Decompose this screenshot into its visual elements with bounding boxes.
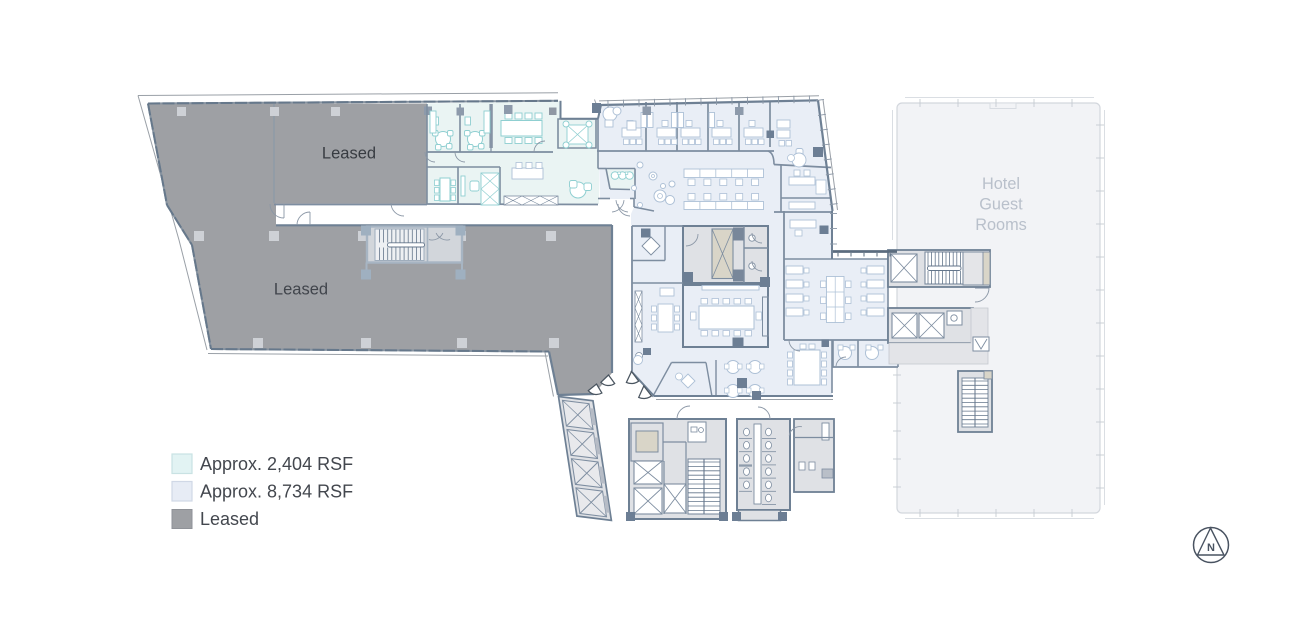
svg-text:Leased: Leased <box>322 145 376 163</box>
svg-text:Leased: Leased <box>274 281 328 299</box>
svg-text:Rooms: Rooms <box>975 216 1027 234</box>
svg-text:Approx. 2,404 RSF: Approx. 2,404 RSF <box>200 454 353 474</box>
svg-text:Hotel: Hotel <box>982 175 1020 193</box>
svg-text:Leased: Leased <box>200 509 259 529</box>
svg-text:Approx. 8,734 RSF: Approx. 8,734 RSF <box>200 482 353 502</box>
svg-text:N: N <box>1207 542 1215 554</box>
svg-text:Guest: Guest <box>979 196 1023 214</box>
